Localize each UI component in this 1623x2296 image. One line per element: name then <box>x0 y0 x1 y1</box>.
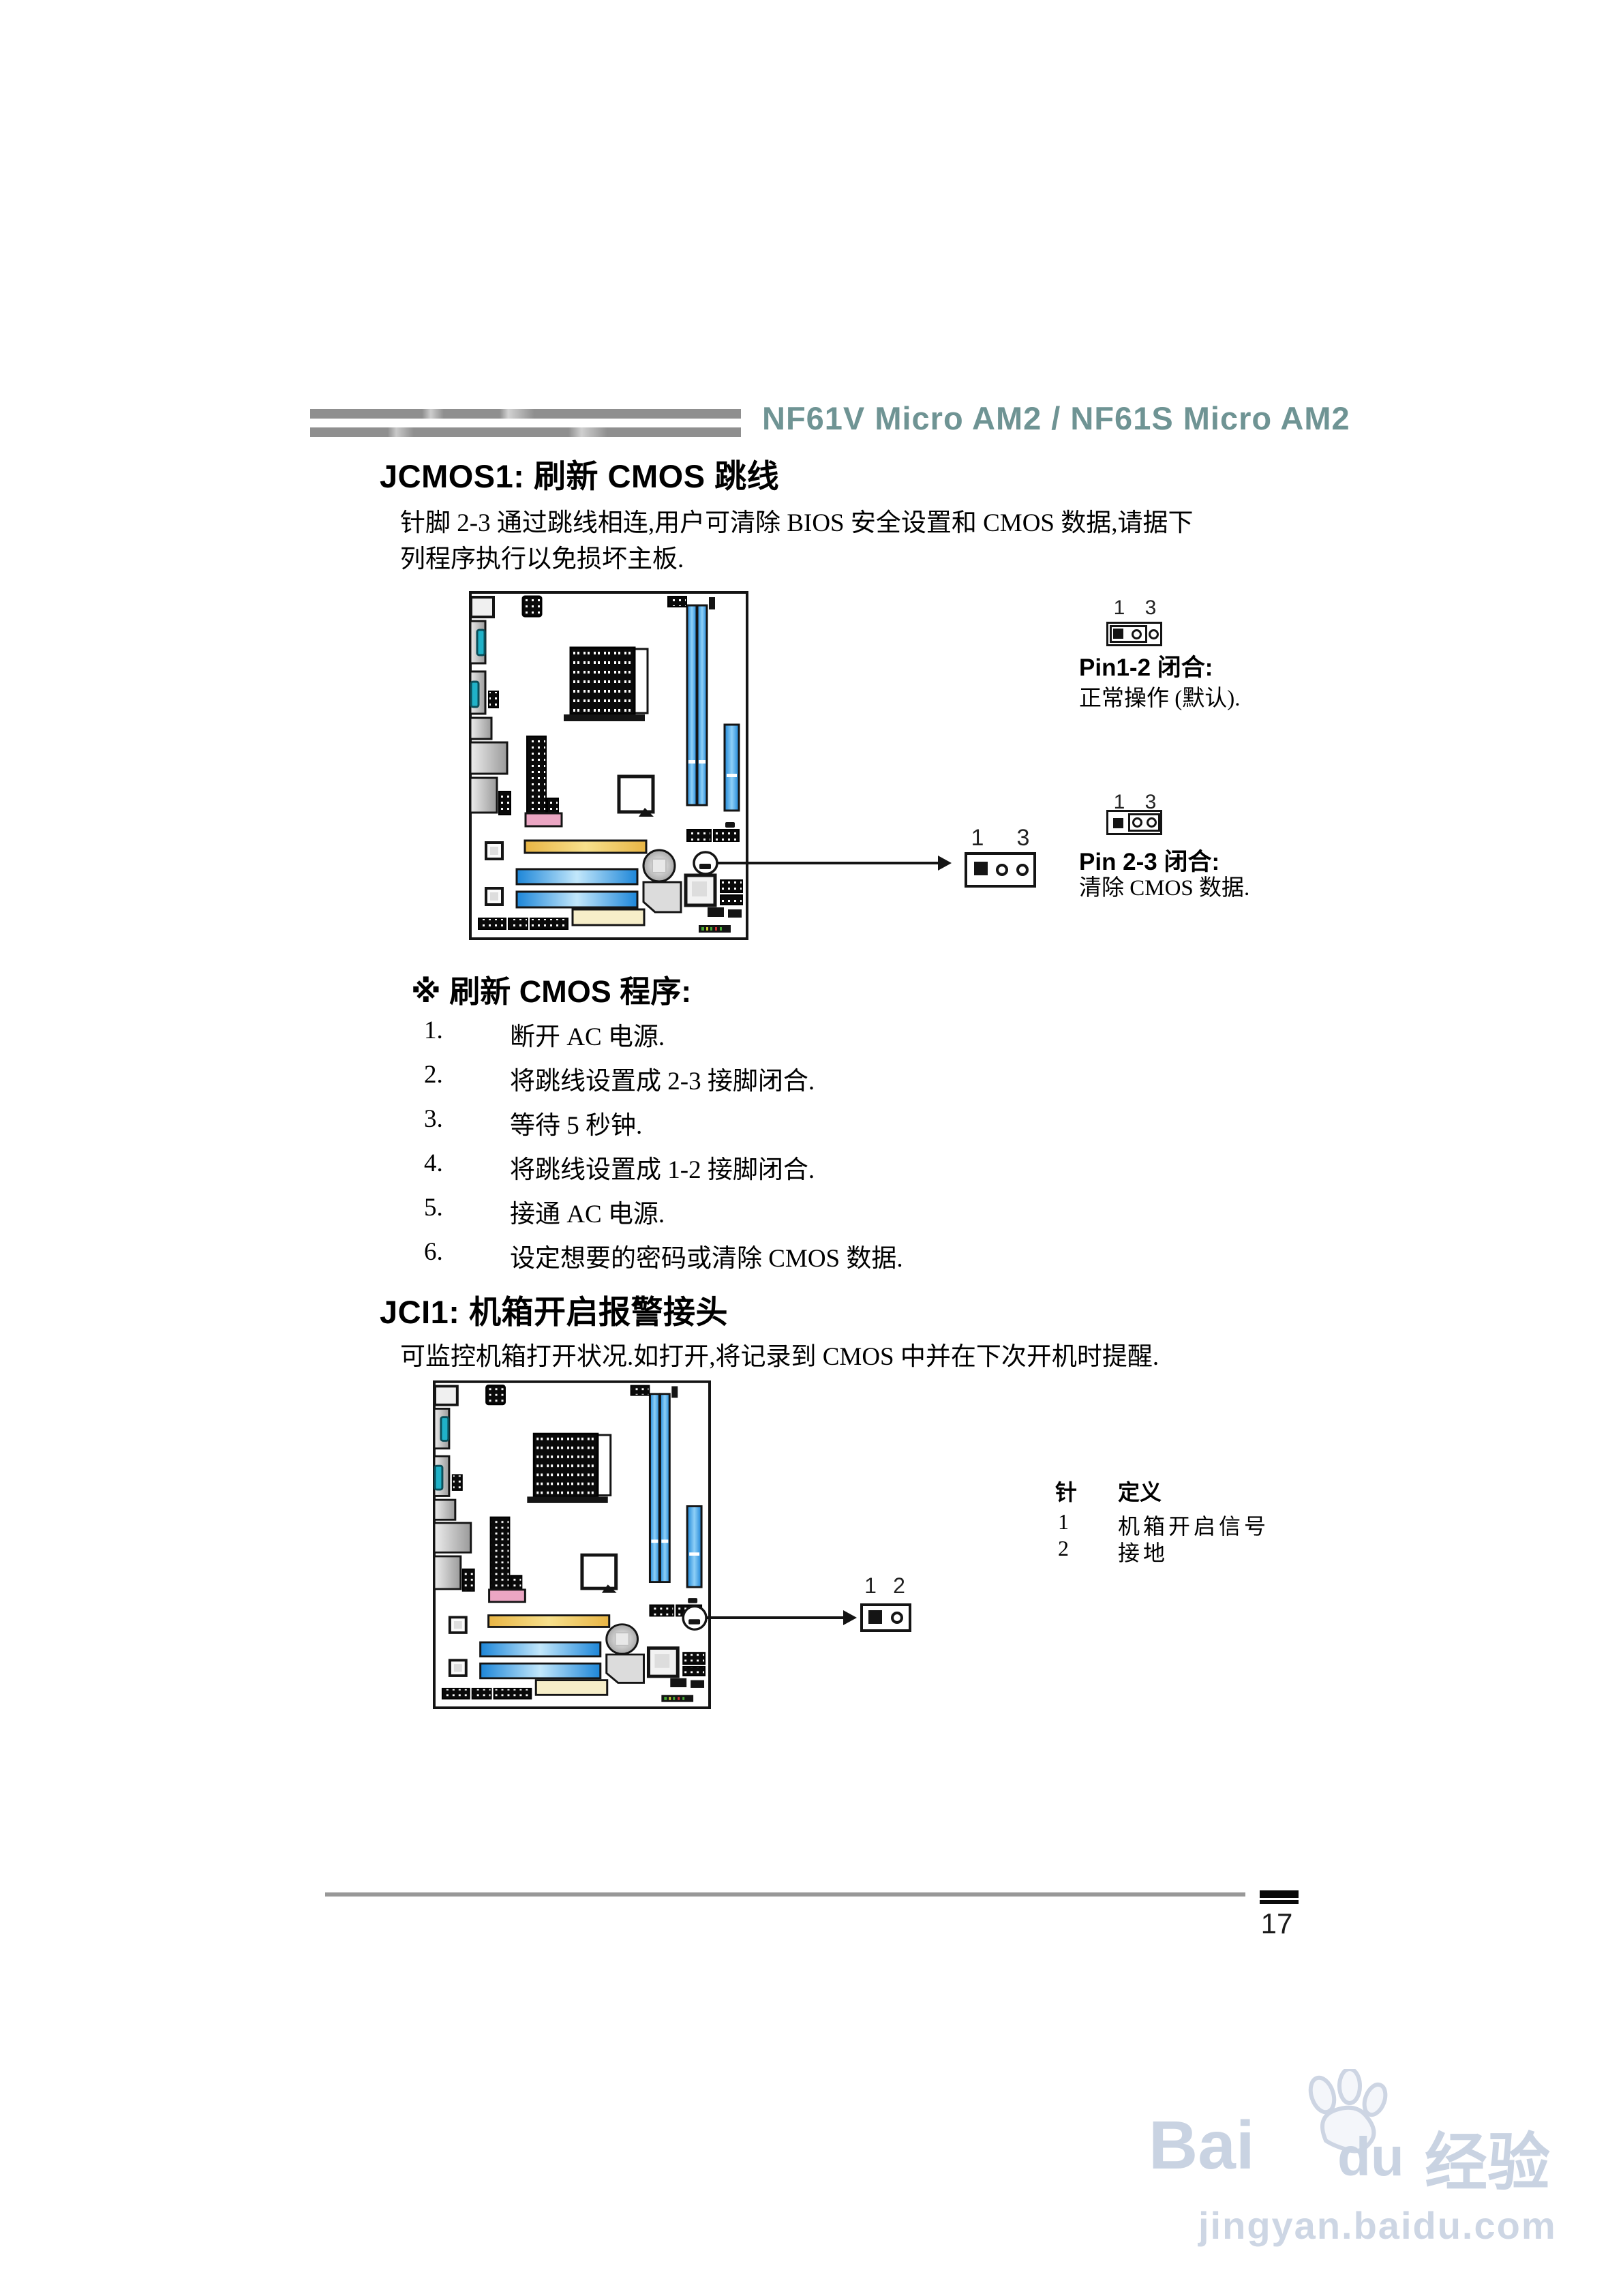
table-row-pin: 2 <box>1058 1536 1069 1561</box>
jci1-jumper-figure: 1 2 <box>860 1573 915 1635</box>
motherboard-diagram-jci1 <box>433 1380 711 1709</box>
pin1-square-icon <box>1113 629 1123 639</box>
step-number: 3. <box>424 1104 443 1134</box>
step-text: 断开 AC 电源. <box>510 1016 665 1053</box>
watermark-jingyan-text: 经验 <box>1425 2112 1550 2203</box>
table-header-pin: 针 <box>1055 1475 1077 1507</box>
jumper-location-highlight <box>694 852 717 874</box>
footer-rule <box>325 1892 1245 1897</box>
procedure-title: ※ 刷新 CMOS 程序: <box>411 967 691 1011</box>
pin12-description: 正常操作 (默认). <box>1079 680 1240 712</box>
step-text: 将跳线设置成 2-3 接脚闭合. <box>510 1060 815 1097</box>
table-header-definition: 定义 <box>1118 1475 1162 1507</box>
pin12-caption: Pin1-2 闭合: <box>1079 648 1213 683</box>
watermark-bai-text: Bai <box>1149 2106 1255 2185</box>
jumper-body <box>965 852 1036 888</box>
watermark-du-text: du <box>1337 2126 1404 2188</box>
step-text: 将跳线设置成 1-2 接脚闭合. <box>510 1149 815 1185</box>
callout-arrow-icon <box>706 1604 862 1631</box>
table-row-definition: 接地 <box>1118 1536 1168 1567</box>
page-number: 17 <box>1256 1907 1297 1940</box>
pin2-circle-icon <box>891 1612 903 1624</box>
callout-arrow-icon <box>716 849 954 877</box>
pin1-label: 1 <box>969 825 986 851</box>
header-decoration-bar-bottom <box>310 427 741 437</box>
step-text: 等待 5 秒钟. <box>510 1104 642 1141</box>
jcmos1-body-line1: 针脚 2-3 通过跳线相连,用户可清除 BIOS 安全设置和 CMOS 数据,请… <box>400 502 1194 539</box>
watermark-url: jingyan.baidu.com <box>1198 2203 1557 2248</box>
jumper-body <box>1106 810 1162 835</box>
pin2-circle-icon <box>1132 817 1142 828</box>
manual-page: NF61V Micro AM2 / NF61S Micro AM2 JCMOS1… <box>0 0 1623 2296</box>
step-text: 设定想要的密码或清除 CMOS 数据. <box>510 1237 903 1274</box>
pin23-description: 清除 CMOS 数据. <box>1079 869 1249 902</box>
pin3-label: 3 <box>1143 596 1158 620</box>
jumper-location-highlight <box>683 1606 706 1629</box>
pin1-square-icon <box>868 1610 882 1624</box>
step-number: 5. <box>424 1193 443 1222</box>
pin1-square-icon <box>1113 818 1123 828</box>
jumper-body <box>1106 622 1162 646</box>
pin1-square-icon <box>974 862 988 875</box>
pin3-label: 3 <box>1014 825 1032 851</box>
step-number: 4. <box>424 1149 443 1178</box>
pin1-label: 1 <box>862 1573 879 1599</box>
jcmos1-body-line2: 列程序执行以免损坏主板. <box>400 538 684 575</box>
footer-mark-bar <box>1260 1890 1299 1898</box>
step-number: 2. <box>424 1060 443 1089</box>
pin2-circle-icon <box>1132 629 1142 639</box>
document-header-title: NF61V Micro AM2 / NF61S Micro AM2 <box>762 399 1350 437</box>
footer-mark-bar <box>1260 1900 1299 1904</box>
pin2-label: 2 <box>891 1573 907 1599</box>
step-text: 接通 AC 电源. <box>510 1193 665 1230</box>
pin3-circle-icon <box>1016 864 1029 876</box>
jcmos1-jumper-figure: 1 3 <box>965 825 1040 890</box>
jcmos1-section-title: JCMOS1: 刷新 CMOS 跳线 <box>380 450 779 497</box>
motherboard-diagram-jcmos1 <box>469 591 748 940</box>
table-row-pin: 1 <box>1058 1509 1069 1535</box>
pin3-circle-icon <box>1149 629 1159 639</box>
jci1-section-title: JCI1: 机箱开启报警接头 <box>380 1286 728 1333</box>
jumper-body <box>860 1603 911 1632</box>
pin2-circle-icon <box>996 864 1008 876</box>
pin3-circle-icon <box>1147 817 1157 828</box>
jci1-body: 可监控机箱打开状况.如打开,将记录到 CMOS 中并在下次开机时提醒. <box>400 1335 1159 1372</box>
pin23-jumper-figure: 1 3 <box>1106 791 1168 842</box>
step-number: 1. <box>424 1016 443 1045</box>
pin1-label: 1 <box>1112 596 1127 620</box>
header-decoration-bar-top <box>310 409 741 419</box>
step-number: 6. <box>424 1237 443 1267</box>
pin12-jumper-figure: 1 3 <box>1106 596 1168 648</box>
